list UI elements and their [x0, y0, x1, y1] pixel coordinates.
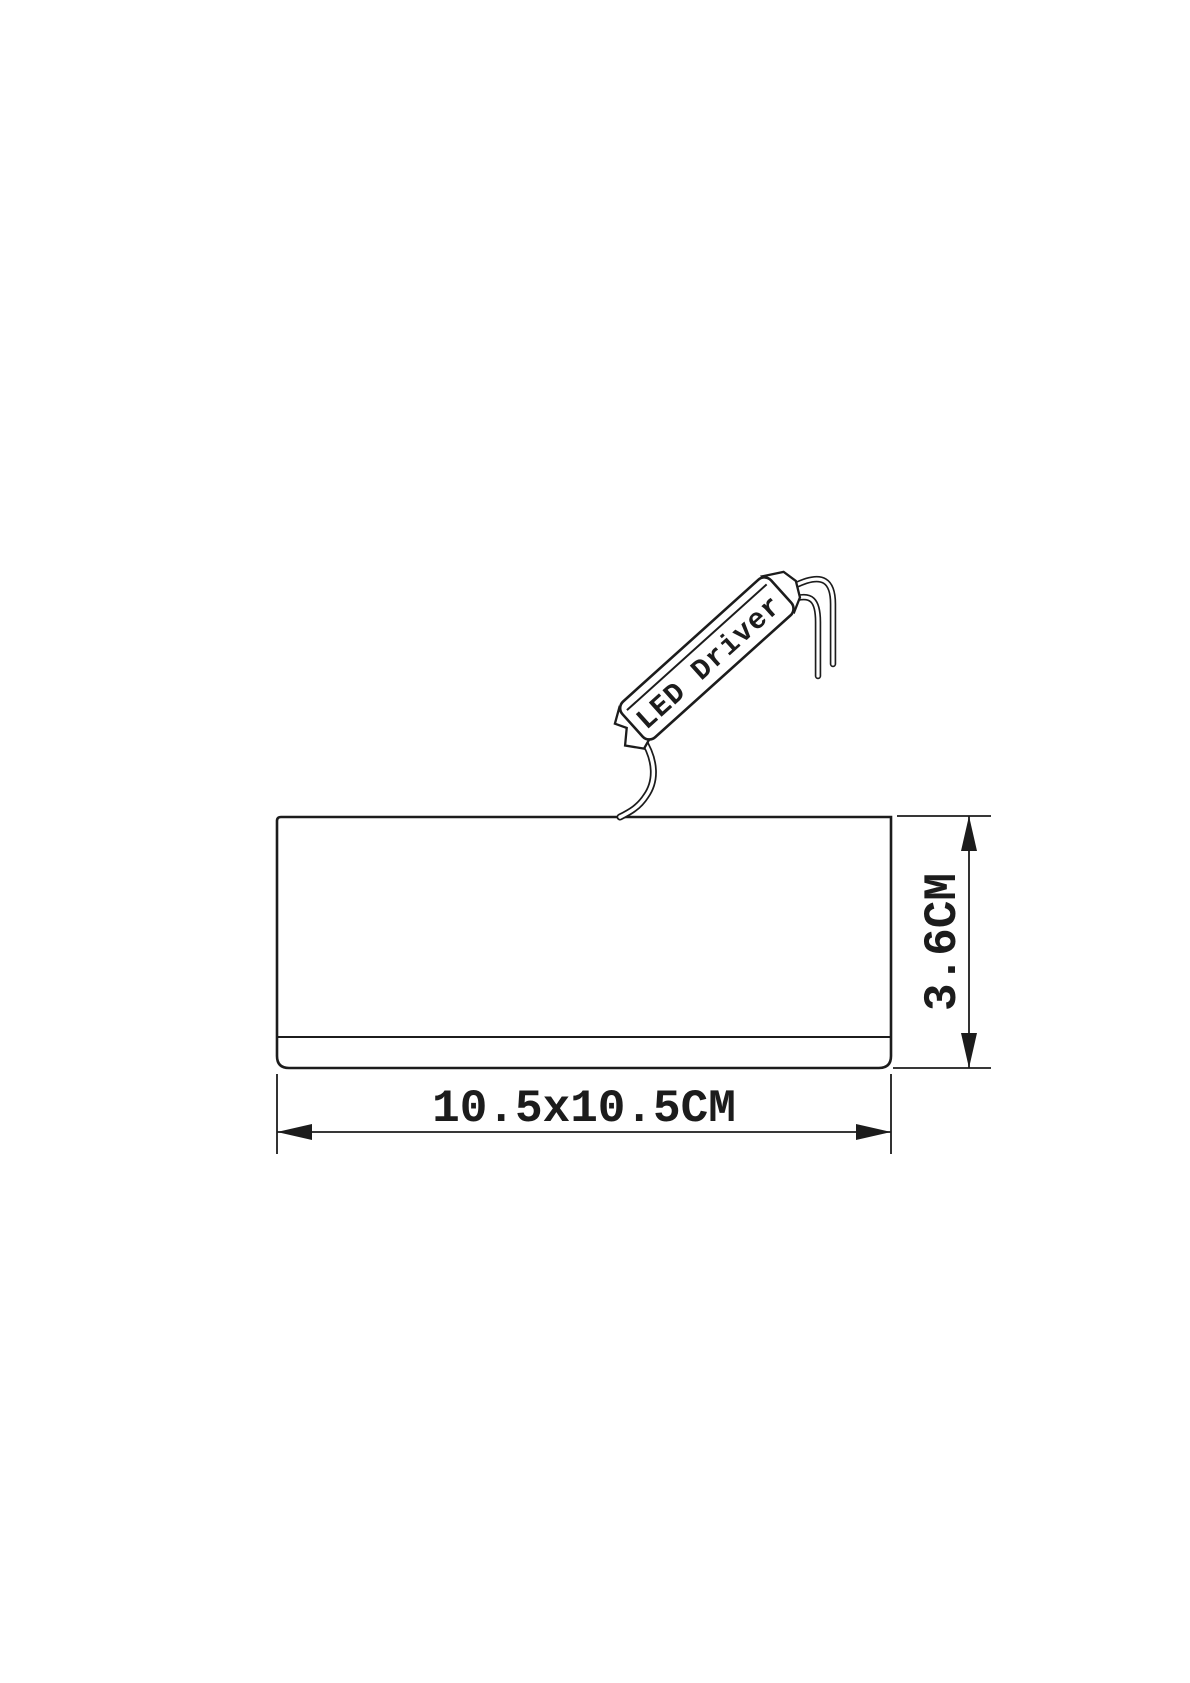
power-cord	[620, 738, 653, 817]
width-dimension: 10.5x10.5CM	[277, 1074, 891, 1154]
arrowhead-down-icon	[961, 1033, 977, 1068]
fixture-outline	[277, 817, 891, 1068]
led-driver: LED Driver	[602, 562, 811, 757]
height-dimension-label: 3.6CM	[917, 873, 969, 1011]
fixture-body	[277, 817, 891, 1068]
height-dimension: 3.6CM	[893, 816, 991, 1068]
arrowhead-left-icon	[277, 1124, 312, 1140]
power-cord-core	[620, 738, 653, 817]
wire-outer-outline	[794, 579, 833, 664]
width-dimension-label: 10.5x10.5CM	[432, 1083, 736, 1135]
wire-outer-core	[794, 579, 833, 664]
arrowhead-up-icon	[961, 816, 977, 851]
arrowhead-right-icon	[856, 1124, 891, 1140]
technical-drawing: LED Driver 10.5x10.5CM 3.6CM	[0, 0, 1190, 1683]
led-driver-label: LED Driver	[630, 589, 789, 737]
